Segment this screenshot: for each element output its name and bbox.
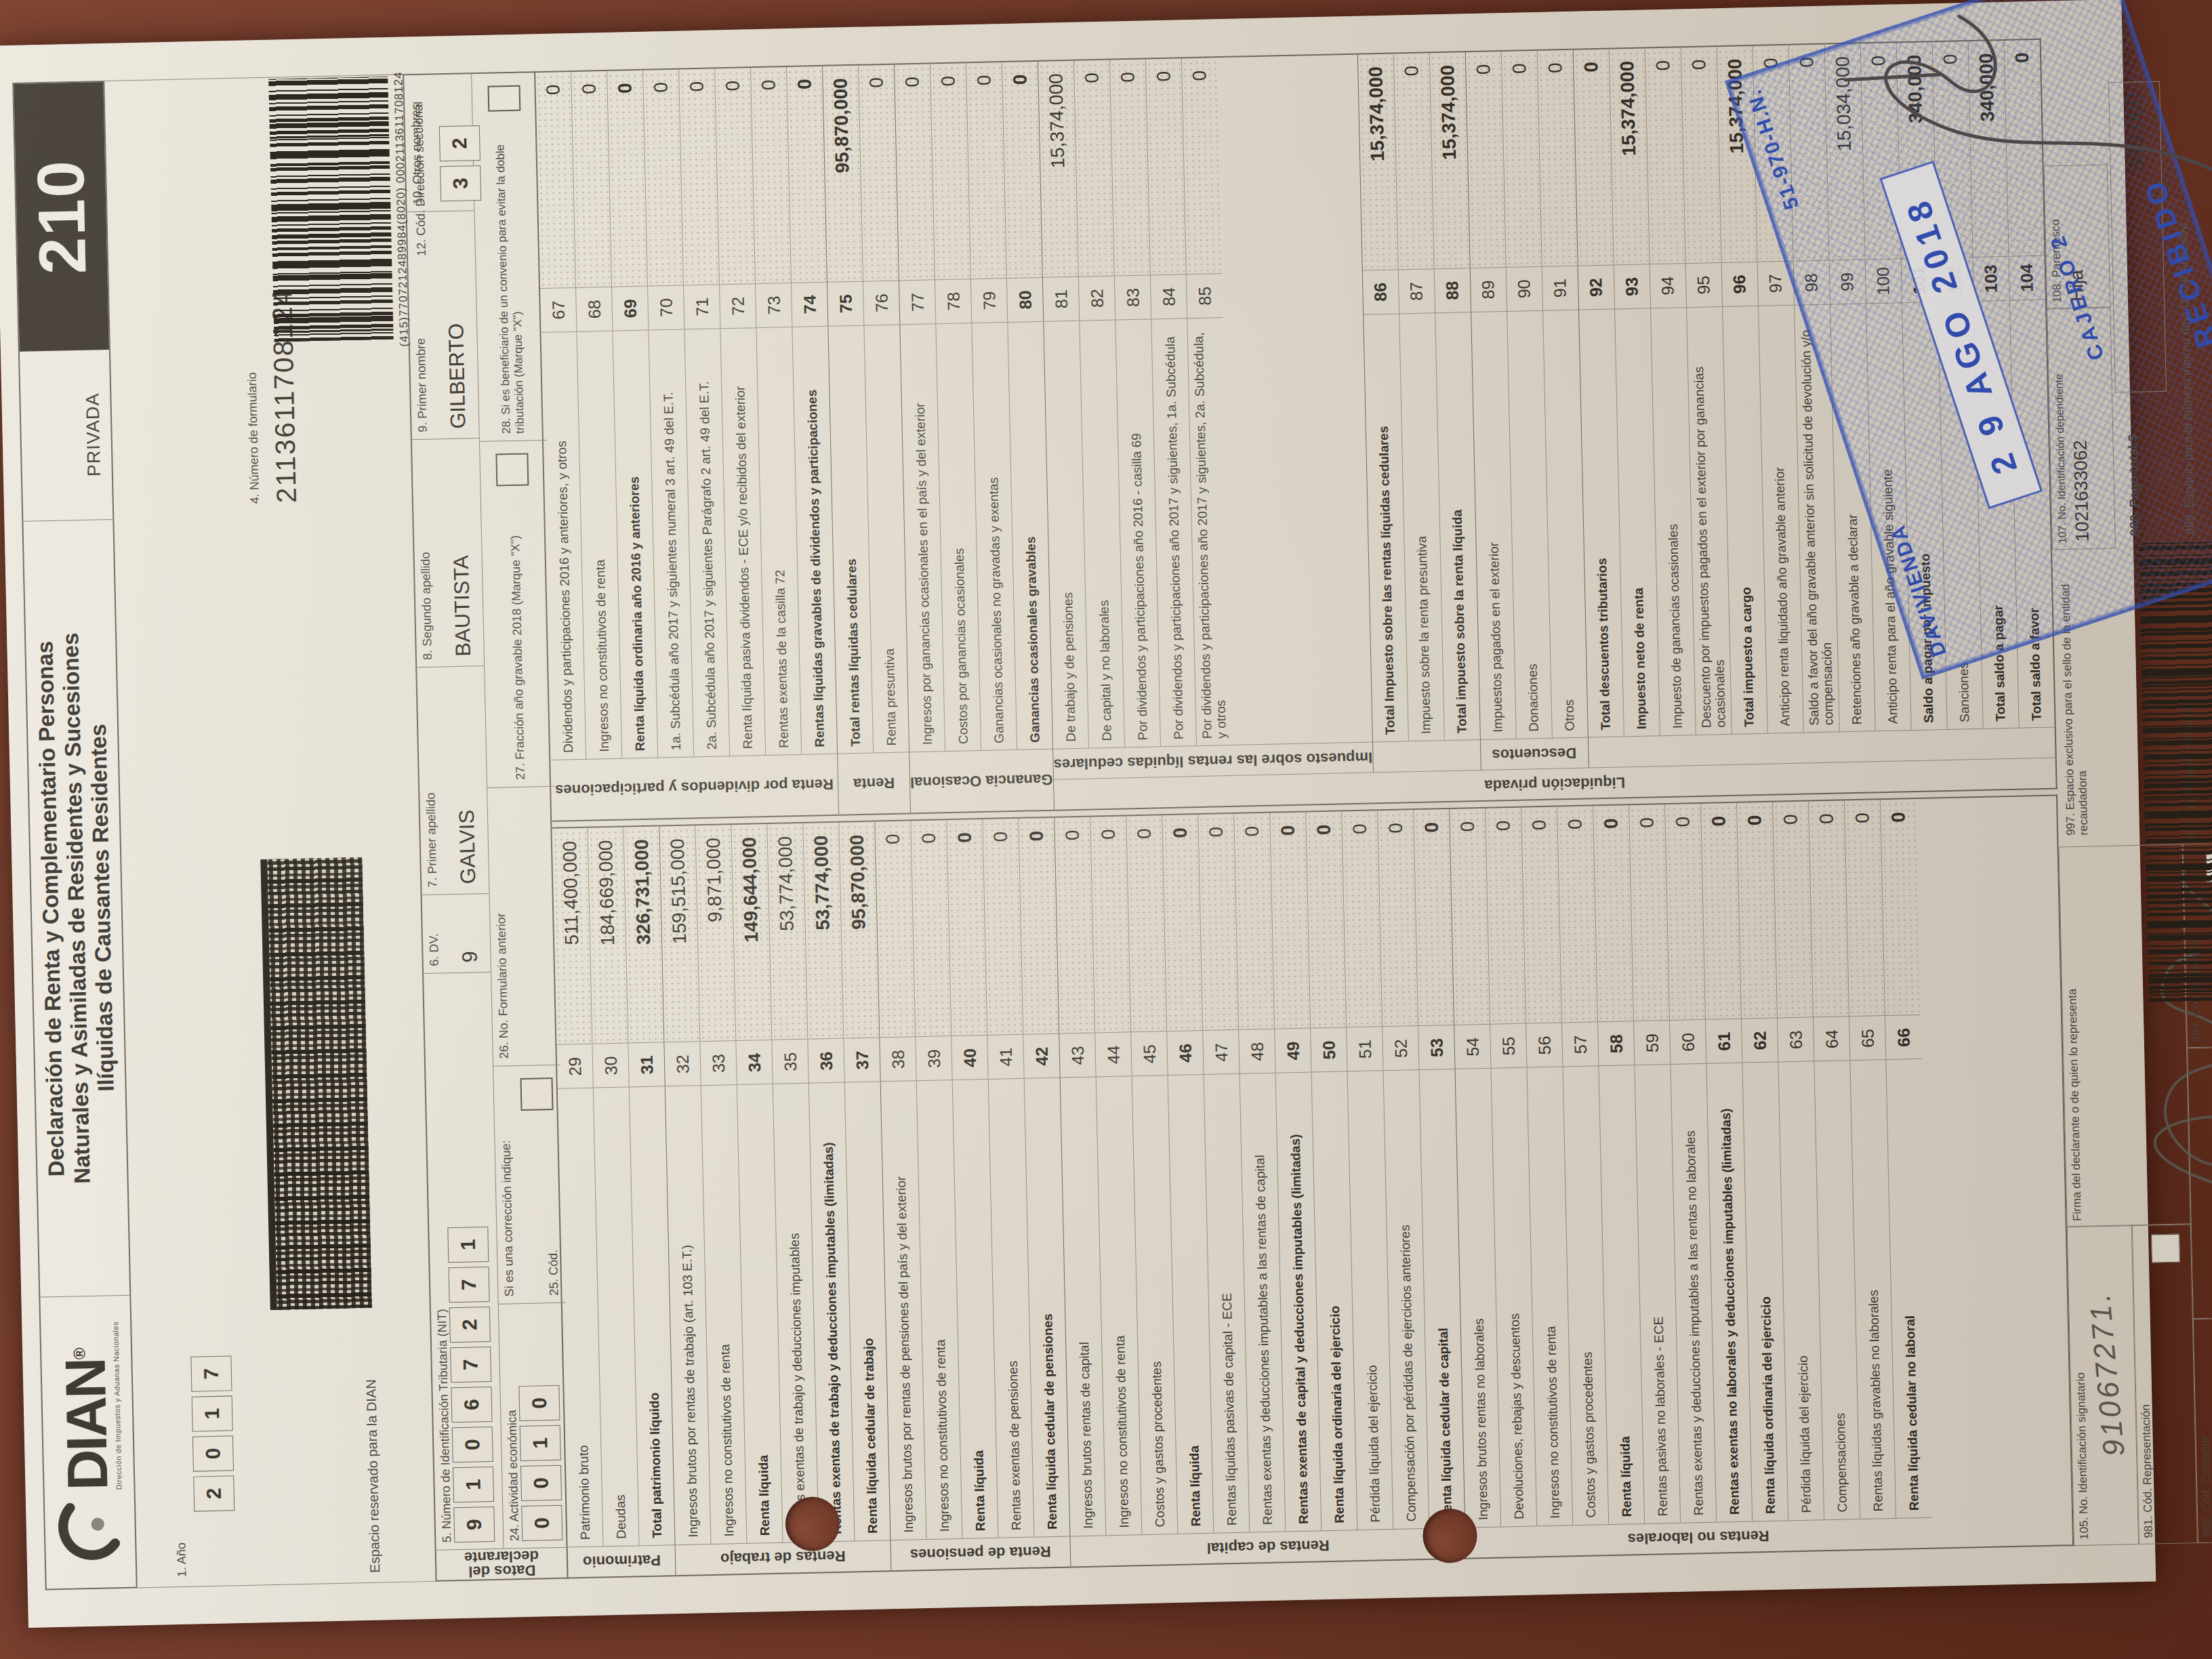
section-group: Ganancia OcasionalIngresos por ganancias…: [895, 62, 1054, 813]
tax-form-210-sheet: DIAN® Dirección de Impuestos y Aduanas N…: [0, 0, 2156, 1628]
row-casilla-number: 55: [1490, 1023, 1526, 1069]
row-casilla-number: 60: [1670, 1019, 1706, 1065]
row-casilla-number: 68: [576, 287, 612, 332]
digit-box: 0: [452, 1427, 493, 1462]
row-value: 0: [1019, 818, 1059, 1034]
digit-box: 7: [190, 1355, 232, 1391]
section-rows: De trabajo y de pensiones8115,374,000De …: [1038, 55, 1372, 750]
digit-box: 2: [439, 125, 480, 161]
row-value: 0: [535, 72, 575, 288]
row-casilla-number: 81: [1043, 276, 1079, 322]
row-value: 0: [1198, 814, 1238, 1030]
row-value: 0: [1126, 816, 1166, 1032]
section-strip: Renta: [838, 752, 910, 815]
digit-box: 0: [192, 1435, 234, 1471]
bottom-barcode: [2138, 539, 2212, 1002]
row-casilla-number: 46: [1167, 1031, 1203, 1076]
digit-box: 9: [453, 1507, 495, 1542]
row-casilla-number: 76: [863, 281, 899, 326]
dv-value: 9: [457, 901, 487, 966]
row-casilla-number: 85: [1187, 273, 1223, 319]
cod-contador-label: 982. Cód. Contador: [2193, 1319, 2212, 1543]
row-value: 0: [966, 62, 1006, 279]
row-casilla-number: 79: [971, 278, 1007, 323]
row-casilla-number: 42: [1023, 1033, 1059, 1079]
section-rows: Impuestos pagados en el exterior890Donac…: [1466, 50, 1588, 740]
row-value: 0: [1466, 52, 1506, 268]
row-casilla-number: 77: [899, 279, 935, 325]
row-casilla-number: 51: [1347, 1027, 1382, 1072]
formulario-anterior-label: 26. No. Formulario anterior: [491, 794, 512, 1059]
section-rows: Patrimonio bruto29511,400,000Deudas30184…: [552, 827, 674, 1547]
row-casilla-number: 50: [1311, 1027, 1347, 1073]
fraccion-checkbox: [495, 453, 529, 487]
row-value: 0: [1645, 47, 1685, 264]
row-casilla-number: 63: [1778, 1017, 1814, 1063]
digit-box: 3: [440, 165, 481, 201]
correccion-field: Si es una corrección indique: 25. Cód.: [493, 1065, 566, 1304]
row-casilla-number: 67: [540, 287, 576, 333]
row-value: 511,400,000: [552, 828, 592, 1044]
section-rows: Ingresos brutos rentas no laborales540De…: [1450, 799, 1931, 1527]
registered-mark: ®: [70, 1349, 88, 1359]
photo-scene: DIAN® Dirección de Impuestos y Aduanas N…: [0, 0, 2212, 1659]
row-value: 0: [1270, 813, 1310, 1029]
section-group: Rentas de trabajoIngresos brutos por ren…: [659, 822, 891, 1575]
privada-label: PRIVADA: [20, 350, 112, 522]
row-casilla-number: 41: [987, 1034, 1023, 1080]
section-label: Rentas no laborales: [1628, 1529, 1769, 1547]
nombre-value: GILBERTO: [442, 218, 475, 432]
row-value: 0: [1845, 800, 1885, 1017]
row-value: 0: [1681, 47, 1721, 263]
row-value: 0: [930, 63, 970, 279]
row-value: 53,774,000: [803, 823, 843, 1039]
row-casilla-number: 74: [792, 282, 827, 327]
row-value: 184,669,000: [588, 827, 628, 1044]
row-casilla-number: 52: [1382, 1026, 1418, 1071]
signatario-id-field: 105. No. Identificación signatario 91067…: [2067, 1225, 2139, 1546]
form-title-block: Declaración de Renta y Complementario Pe…: [23, 520, 129, 1298]
row-casilla-number: 66: [1885, 1015, 1921, 1060]
section-strip: [1373, 739, 1481, 772]
row-value: 0: [1629, 805, 1669, 1021]
row-value: 15,374,000: [1038, 61, 1078, 277]
row-value: 0: [1537, 50, 1577, 266]
row-value: 53,774,000: [767, 823, 807, 1040]
row-casilla-number: 86: [1362, 269, 1398, 314]
row-value: 0: [1486, 808, 1525, 1024]
section-rows: Ingresos brutos por rentas de pensiones …: [875, 818, 1069, 1540]
row-value: 0: [1234, 813, 1274, 1029]
row-value: 95,870,000: [839, 822, 879, 1038]
section-rows: Ingresos brutos rentas de capital430Ingr…: [1054, 809, 1465, 1536]
form-code-box: 210: [14, 82, 109, 352]
apellido1-field: 7. Primer apellido GALVIS: [417, 665, 489, 895]
digit-box: 2: [193, 1475, 234, 1511]
row-value: 0: [895, 64, 935, 280]
section-label: Rentas de capital: [1206, 1539, 1329, 1556]
row-value: 0: [1557, 806, 1597, 1023]
row-casilla-number: 35: [772, 1039, 808, 1084]
section-group: Renta de pensionesIngresos brutos por re…: [875, 818, 1071, 1570]
row-casilla-number: 38: [880, 1037, 916, 1082]
digit-box: 0: [521, 1505, 562, 1541]
row-value: 0: [679, 68, 719, 285]
section-rows: Total Impuesto sobre las rentas líquidas…: [1358, 52, 1480, 742]
section-strip: Renta de pensiones: [890, 1536, 1070, 1570]
row-value: 0: [1162, 815, 1202, 1031]
dian-2d-barcode: [260, 857, 371, 1310]
row-casilla-number: 34: [736, 1040, 772, 1085]
liquidacion-privada-label: Liquidación privada: [1484, 775, 1625, 793]
row-value: 0: [1054, 817, 1094, 1033]
year-label: 1. Año: [174, 1542, 189, 1577]
formulario-anterior-field: 26. No. Formulario anterior: [487, 786, 560, 1066]
section-rows: Ingresos brutos por rentas de trabajo (a…: [659, 822, 890, 1544]
section-strip: Patrimonio: [568, 1544, 676, 1577]
section-label: Impuesto sobre las rentas líquidas cedul…: [1053, 750, 1372, 771]
fraccion-label: 27. Fracción año gravable 2018 (Marque "…: [508, 535, 528, 780]
digit-box: 1: [447, 1227, 489, 1263]
row-value: 0: [859, 65, 899, 281]
convenio-field: 28. Si es beneficiario de un convenio pa…: [472, 73, 547, 441]
year-digit-boxes: 2017: [190, 1355, 234, 1511]
row-casilla-number: 33: [700, 1041, 736, 1086]
dv-field: 6. DV. 9: [422, 893, 491, 973]
top-barcode: [268, 77, 393, 342]
section-strip: Rentas de trabajo: [676, 1540, 891, 1575]
row-casilla-number: 72: [720, 283, 756, 329]
row-casilla-number: 65: [1849, 1016, 1885, 1061]
row-value: 0: [715, 68, 755, 284]
apellido1-value: GALVIS: [451, 673, 485, 887]
row-casilla-number: 95: [1685, 262, 1721, 308]
row-casilla-number: 90: [1506, 266, 1542, 312]
row-casilla-number: 75: [827, 281, 863, 327]
row-casilla-number: 89: [1470, 267, 1506, 312]
section-group: Impuesto sobre las rentas líquidas cedul…: [1038, 55, 1374, 780]
section-label: Patrimonio: [582, 1553, 660, 1570]
dv-label: 6. DV.: [426, 901, 442, 966]
row-value: 0: [911, 821, 951, 1037]
correccion-label: Si es una corrección indique:: [497, 1073, 516, 1296]
row-casilla-number: 43: [1059, 1033, 1095, 1078]
apellido2-value: BAUTISTA: [447, 445, 480, 659]
row-casilla-number: 30: [592, 1043, 628, 1088]
row-value: 0: [571, 71, 611, 287]
row-value: 0: [947, 820, 987, 1036]
row-casilla-number: 39: [916, 1036, 951, 1082]
row-value: 0: [1378, 811, 1418, 1027]
dian-logo: DIAN® Dirección de Impuestos y Aduanas N…: [40, 1296, 136, 1589]
row-value: 0: [751, 67, 791, 283]
row-value: 0: [1090, 817, 1130, 1033]
section-group: Renta por dividendos y participacionesDi…: [535, 66, 839, 821]
row-casilla-number: 37: [844, 1038, 880, 1083]
row-value: 0: [1665, 804, 1705, 1020]
convenio-checkbox: [487, 85, 520, 112]
form-number-label: 4. Número de formulario: [245, 372, 262, 504]
row-casilla-number: 36: [808, 1038, 844, 1084]
row-casilla-number: 57: [1562, 1022, 1598, 1067]
section-label: Ganancia Ocasional: [910, 773, 1053, 790]
row-value: 95,870,000: [823, 66, 863, 282]
row-casilla-number: 54: [1454, 1024, 1490, 1069]
row-casilla-number: 80: [1007, 277, 1043, 323]
row-value: 326,731,000: [623, 827, 663, 1043]
apellido1-label: 7. Primer apellido: [421, 674, 440, 888]
section-group: Rentas de capitalIngresos brutos rentas …: [1054, 809, 1466, 1566]
row-casilla-number: 69: [612, 286, 648, 331]
row-value: 0: [1573, 49, 1613, 266]
row-casilla-number: 61: [1706, 1019, 1742, 1064]
row-value: 0: [1394, 53, 1434, 269]
row-value: 0: [607, 70, 647, 287]
row-casilla-number: 73: [756, 283, 792, 328]
stamp-handwritten-flourish: [1816, 0, 2212, 223]
row-casilla-number: 59: [1634, 1020, 1670, 1065]
row-casilla-number: 47: [1203, 1029, 1239, 1075]
row-value: 0: [1182, 58, 1222, 274]
row-value: 15,374,000: [1609, 48, 1649, 264]
section-label: Rentas de trabajo: [720, 1549, 846, 1566]
row-casilla-number: 49: [1275, 1028, 1311, 1073]
row-casilla-number: 31: [628, 1042, 664, 1088]
row-value: 0: [643, 70, 683, 286]
digit-box: 0: [520, 1465, 562, 1501]
row-value: 0: [787, 66, 827, 283]
row-casilla-number: 48: [1239, 1029, 1275, 1074]
digit-box: 2: [449, 1307, 491, 1343]
cod25-box: [520, 1078, 553, 1111]
row-value: 0: [1414, 809, 1454, 1025]
row-casilla-number: 45: [1131, 1031, 1167, 1077]
form-header-row2: 1. Año 2017 Espacio reservado para la DI…: [104, 74, 436, 1588]
row-casilla-number: 64: [1814, 1017, 1849, 1062]
row-value: 0: [1593, 806, 1633, 1022]
convenio-label: 28. Si es beneficiario de un convenio pa…: [493, 111, 527, 434]
row-value: 15,374,000: [1358, 54, 1398, 270]
section-rows: Dividendos y participaciones 2016 y ante…: [535, 66, 837, 760]
dian-swoosh-icon: [57, 1496, 123, 1563]
row-value: 0: [983, 819, 1023, 1035]
row-casilla-number: 94: [1650, 263, 1685, 308]
row-casilla-number: 71: [684, 284, 720, 329]
row-value: 0: [1809, 801, 1849, 1017]
section-group: DescuentosImpuestos pagados en el exteri…: [1466, 50, 1589, 771]
row-value: 0: [1002, 62, 1042, 278]
actividad-field: 24. Actividad económica 0010: [499, 1303, 571, 1549]
row-casilla-number: 78: [935, 279, 971, 324]
row-casilla-number: 96: [1721, 262, 1757, 307]
row-casilla-number: 62: [1742, 1018, 1778, 1063]
section-strip: Descuentos: [1481, 737, 1589, 770]
row-value: 15,374,000: [1430, 52, 1470, 268]
reserved-space-label: Espacio reservado para la DIAN: [363, 1379, 383, 1573]
cod-representacion-box: [2151, 1234, 2180, 1263]
digit-box: 6: [451, 1387, 492, 1422]
cod-representacion-field: 981. Cód. Representación: [2131, 1223, 2198, 1544]
apellido2-field: 8. Segundo apellido BAUTISTA: [412, 438, 484, 667]
row-casilla-number: 93: [1614, 264, 1650, 309]
section-label: Renta de pensiones: [910, 1545, 1051, 1563]
section-rows: Ingresos por ganancias ocasionales en el…: [895, 62, 1052, 752]
row-casilla-number: 92: [1578, 265, 1614, 310]
section-group: PatrimonioPatrimonio bruto29511,400,000D…: [552, 827, 676, 1578]
row-value: 0: [1881, 799, 1921, 1015]
row-casilla-number: 88: [1434, 268, 1470, 313]
row-value: 0: [1773, 802, 1813, 1018]
row-value: 0: [875, 821, 915, 1038]
digit-box: 1: [453, 1467, 494, 1502]
section-strip: Ganancia Ocasional: [909, 749, 1054, 813]
row-value: 0: [1502, 51, 1542, 267]
cod25-label: 25. Cód.: [546, 1250, 561, 1296]
row-casilla-number: 32: [664, 1042, 700, 1087]
section-group: Total Impuesto sobre las rentas líquidas…: [1358, 52, 1481, 773]
section-group: Rentas no laboralesIngresos brutos renta…: [1450, 799, 1932, 1557]
row-value: 0: [1737, 802, 1777, 1019]
row-casilla-number: 53: [1418, 1025, 1454, 1070]
stamp-cashier: CAJERO 2: [2044, 230, 2108, 364]
row-casilla-number: 91: [1542, 266, 1578, 311]
digit-box: 7: [450, 1347, 491, 1382]
row-casilla-number: 58: [1598, 1021, 1634, 1067]
row-casilla-number: 56: [1526, 1023, 1562, 1068]
row-value: 0: [1146, 58, 1186, 274]
declarant-strip: Datos del declarante: [436, 1547, 567, 1580]
row-value: 0: [1110, 60, 1150, 276]
section-label: Renta: [853, 776, 895, 791]
row-value: 0: [1521, 807, 1561, 1023]
row-value: 0: [1074, 60, 1114, 276]
row-value: 0: [1701, 803, 1741, 1019]
digit-box: 1: [520, 1425, 561, 1461]
row-value: 0: [1342, 811, 1382, 1027]
section-label: Renta por dividendos y participaciones: [555, 777, 834, 798]
declarant-strip-label: Datos del declarante: [436, 1549, 567, 1580]
apellido2-label: 8. Segundo apellido: [416, 447, 435, 660]
digit-box: 1: [192, 1395, 233, 1431]
row-casilla-number: 84: [1151, 274, 1187, 319]
seccional-digit-boxes: 32: [439, 125, 481, 201]
fraccion-field: 27. Fracción año gravable 2018 (Marque "…: [480, 440, 554, 787]
row-casilla-number: 44: [1095, 1032, 1131, 1078]
row-casilla-number: 82: [1079, 276, 1115, 321]
digit-box: 7: [449, 1267, 490, 1303]
row-value: 0: [1306, 812, 1346, 1028]
section-rows: Total rentas líquidas cedulares7595,870,…: [823, 65, 909, 754]
left-column: PatrimonioPatrimonio bruto29511,400,000D…: [552, 795, 2073, 1579]
digit-box: 0: [518, 1385, 560, 1421]
row-value: 149,644,000: [731, 824, 771, 1040]
nit-field: 5. Número de Identificación Tributaria (…: [424, 972, 504, 1550]
row-casilla-number: 29: [556, 1044, 592, 1089]
row-casilla-number: 83: [1115, 274, 1151, 320]
section-strip: Renta por dividendos y participaciones: [550, 754, 838, 821]
actividad-digit-boxes: 0010: [517, 1310, 562, 1541]
row-casilla-number: 40: [951, 1035, 987, 1080]
dian-logo-text: DIAN®: [52, 1322, 115, 1491]
row-casilla-number: 87: [1398, 268, 1434, 314]
row-value: 159,515,000: [659, 826, 699, 1042]
section-label: Descuentos: [1492, 746, 1577, 762]
row-value: 9,871,000: [695, 825, 735, 1042]
row-casilla-number: 70: [648, 285, 684, 330]
row-value: 0: [1450, 808, 1490, 1025]
